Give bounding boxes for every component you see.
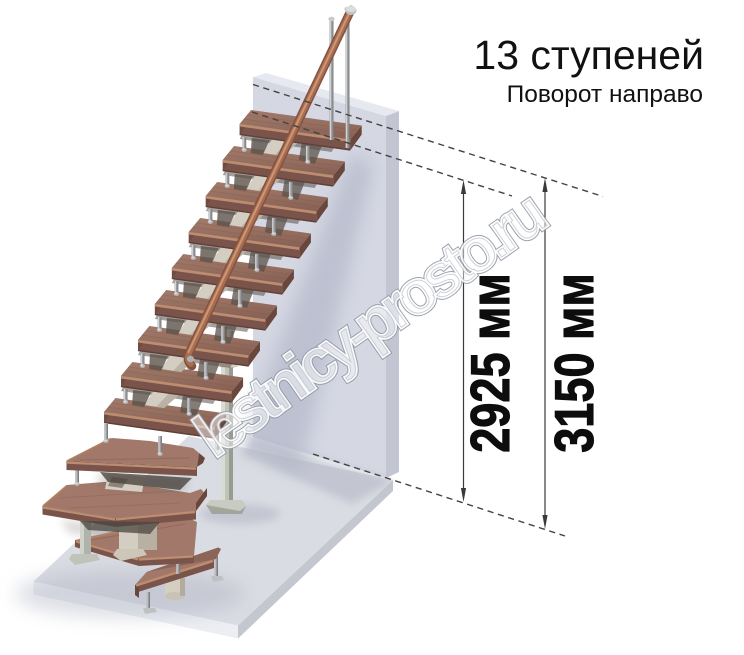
- svg-text:3150 мм: 3150 мм: [543, 273, 605, 453]
- svg-text:13 ступеней: 13 ступеней: [473, 32, 704, 78]
- svg-text:Поворот направо: Поворот направо: [507, 81, 703, 108]
- svg-text:2925 мм: 2925 мм: [459, 273, 521, 453]
